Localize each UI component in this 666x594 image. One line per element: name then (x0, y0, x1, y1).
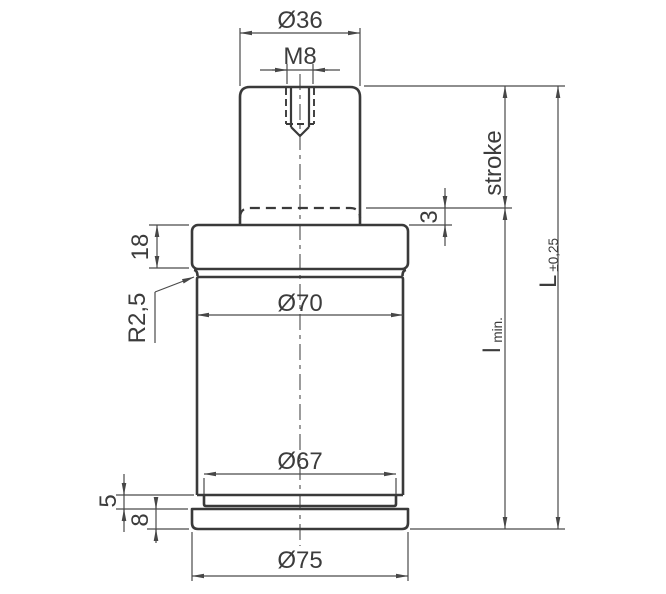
extension-lines (149, 225, 189, 268)
dim-base-height: 8 (127, 497, 189, 543)
gas-spring-drawing: Ø36 M8 18 R2,5 Ø70 Ø67 5 (0, 0, 666, 594)
label-clearance: 3 (416, 210, 443, 223)
label-thread: M8 (283, 43, 316, 70)
label-body-diameter: Ø70 (277, 290, 322, 317)
dim-min-length: lmin. (479, 208, 506, 529)
dim-clearance: 3 (409, 188, 452, 246)
label-min-length: lmin. (479, 317, 506, 353)
extension-lines (116, 495, 194, 509)
min-length-suffix: min. (490, 317, 505, 343)
neck-fillet-left (194, 270, 198, 276)
label-groove-diameter: Ø67 (277, 448, 322, 475)
dim-stroke: stroke (364, 86, 565, 208)
dim-fillet-radius: R2,5 (124, 277, 194, 343)
technical-drawing-canvas: Ø36 M8 18 R2,5 Ø70 Ø67 5 (0, 0, 666, 594)
label-head-height: 18 (127, 234, 154, 261)
neck-fillet-right (403, 270, 407, 276)
min-length-symbol: l (479, 348, 506, 353)
label-total-length: L±0,25 (535, 238, 562, 288)
leader-line (155, 277, 194, 292)
total-length-symbol: L (535, 275, 562, 288)
extension-lines (364, 86, 565, 208)
label-base-diameter: Ø75 (277, 547, 322, 574)
label-groove-height: 5 (95, 494, 122, 507)
label-fillet-radius: R2,5 (124, 293, 151, 344)
label-rod-diameter: Ø36 (277, 7, 322, 34)
label-base-height: 8 (127, 513, 154, 526)
dim-head-height: 18 (127, 225, 189, 268)
dim-body-diameter: Ø70 (197, 290, 403, 317)
label-stroke: stroke (480, 130, 507, 195)
total-length-tolerance: ±0,25 (546, 238, 561, 272)
